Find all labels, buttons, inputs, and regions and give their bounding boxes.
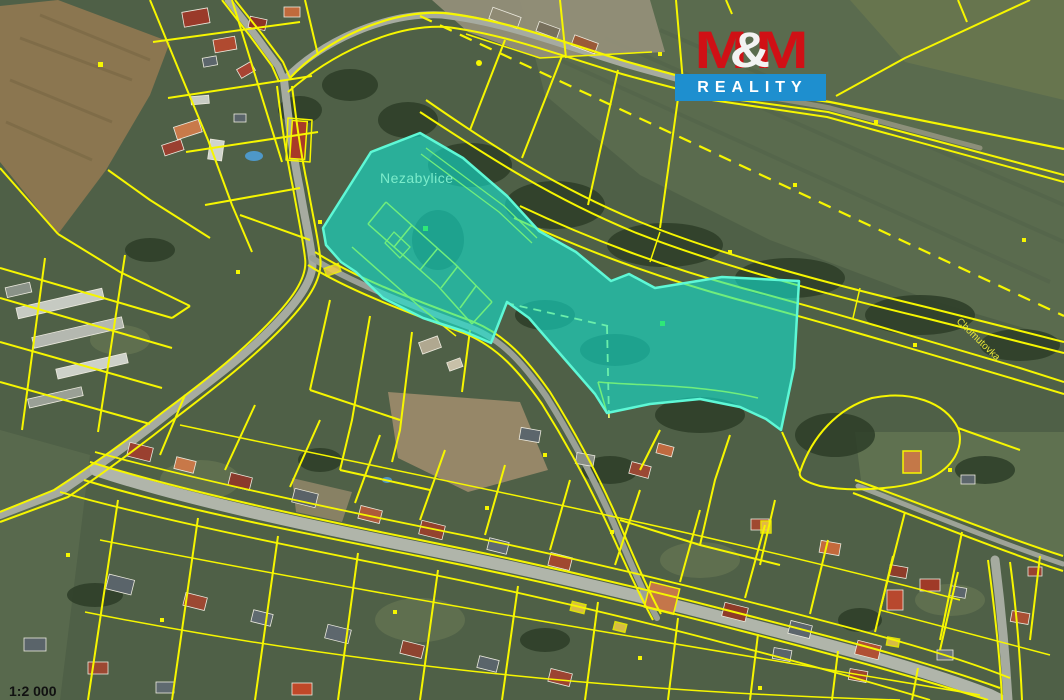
swimming-pool: [245, 151, 263, 161]
mm-reality-logo: M & M REALITY: [668, 22, 832, 101]
map-screenshot: Nezabylice Chomutovka M & M REALITY 1:2 …: [0, 0, 1064, 700]
terrain-layer: [0, 0, 1064, 700]
logo-ampersand: &: [730, 25, 770, 75]
green-parcel-marker: [660, 321, 665, 326]
green-parcel-marker: [423, 226, 428, 231]
map-scale-label: 1:2 000: [9, 683, 56, 699]
settlement-label: Nezabylice: [380, 170, 453, 186]
logo-mm-row: M & M: [668, 22, 832, 78]
cadastral-map[interactable]: Nezabylice Chomutovka: [0, 0, 1064, 700]
